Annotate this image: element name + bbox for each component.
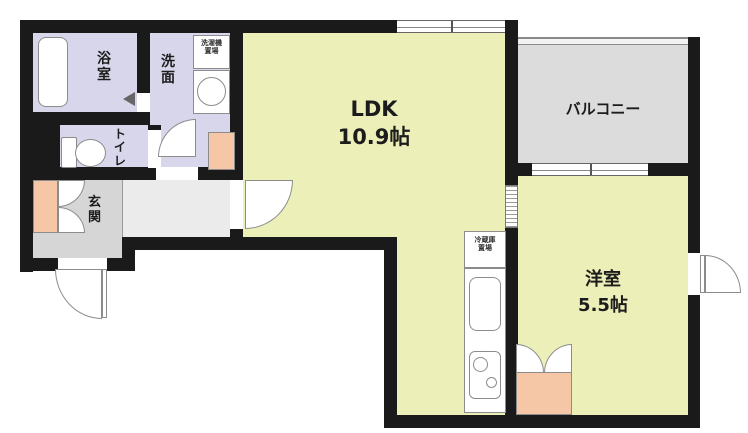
balcony-label: バルコニー (533, 98, 673, 119)
ldk-top-window (397, 20, 505, 33)
bath-label: 浴室 (96, 52, 112, 83)
corridor-floor (122, 180, 230, 237)
wall-bath-washroom (137, 33, 150, 93)
ldk-label: LDK 10.9帖 (299, 97, 449, 151)
entrance-door-leaf (102, 269, 107, 318)
fridge-space-box: 冷蔵庫 置場 (464, 231, 506, 268)
ldk-yoshitsu-sliding-door (505, 185, 518, 228)
fridge-label-line1: 冷蔵庫 (475, 236, 496, 244)
bath-door-opening (137, 93, 150, 112)
laundry-space-box: 洗濯機 置場 (193, 35, 230, 69)
genkan-step-line (122, 180, 123, 237)
washroom-label: 洗面 (160, 55, 176, 86)
wall-balcony-right (688, 37, 700, 176)
yoshitsu-size: 5.5帖 (533, 291, 673, 317)
yoshitsu-closet (516, 372, 572, 415)
bath-folding-door-icon (123, 92, 135, 106)
balcony-railing (518, 37, 688, 45)
ldk-name: LDK (299, 97, 449, 121)
storage-strip (208, 132, 235, 170)
genkan-label: 玄関 (87, 196, 102, 225)
yoshitsu-door-arc (705, 255, 741, 293)
bathtub-fixture (38, 37, 68, 107)
yoshitsu-label: 洋室 5.5帖 (533, 265, 673, 317)
ldk-size: 10.9帖 (299, 121, 449, 151)
laundry-label-line1: 洗濯機 (201, 39, 222, 47)
wall-ldk-bottom-left (122, 237, 397, 250)
shoe-closet (33, 180, 58, 233)
wall-kitchen-left (384, 237, 397, 428)
yoshitsu-balcony-window (532, 163, 648, 176)
stove-burner-icon-1 (473, 357, 488, 372)
yoshitsu-name: 洋室 (533, 265, 673, 291)
toilet-label: トイレ (113, 128, 127, 168)
toilet-bowl-fixture (75, 139, 106, 167)
fridge-label-line2: 置場 (478, 244, 492, 252)
stove-burner-icon-2 (486, 377, 497, 388)
wall-ldk-right-upper (505, 20, 518, 185)
ps-label: PS (27, 138, 40, 148)
washroom-door-opening (156, 167, 198, 180)
kitchen-sink-fixture (469, 277, 501, 331)
yoshitsu-door-opening (688, 253, 700, 295)
floor-plan: 洗濯機 置場 冷蔵庫 置場 浴室 洗面 トイレ PS 玄関 LDK 10.9帖 … (0, 0, 748, 433)
washing-machine-drum-icon (197, 77, 226, 106)
wall-yoshitsu-right (688, 176, 700, 428)
laundry-label-line2: 置場 (205, 47, 219, 55)
wall-bottom (384, 415, 700, 428)
entrance-door-arc (55, 269, 102, 319)
ldk-door-opening (230, 180, 243, 229)
